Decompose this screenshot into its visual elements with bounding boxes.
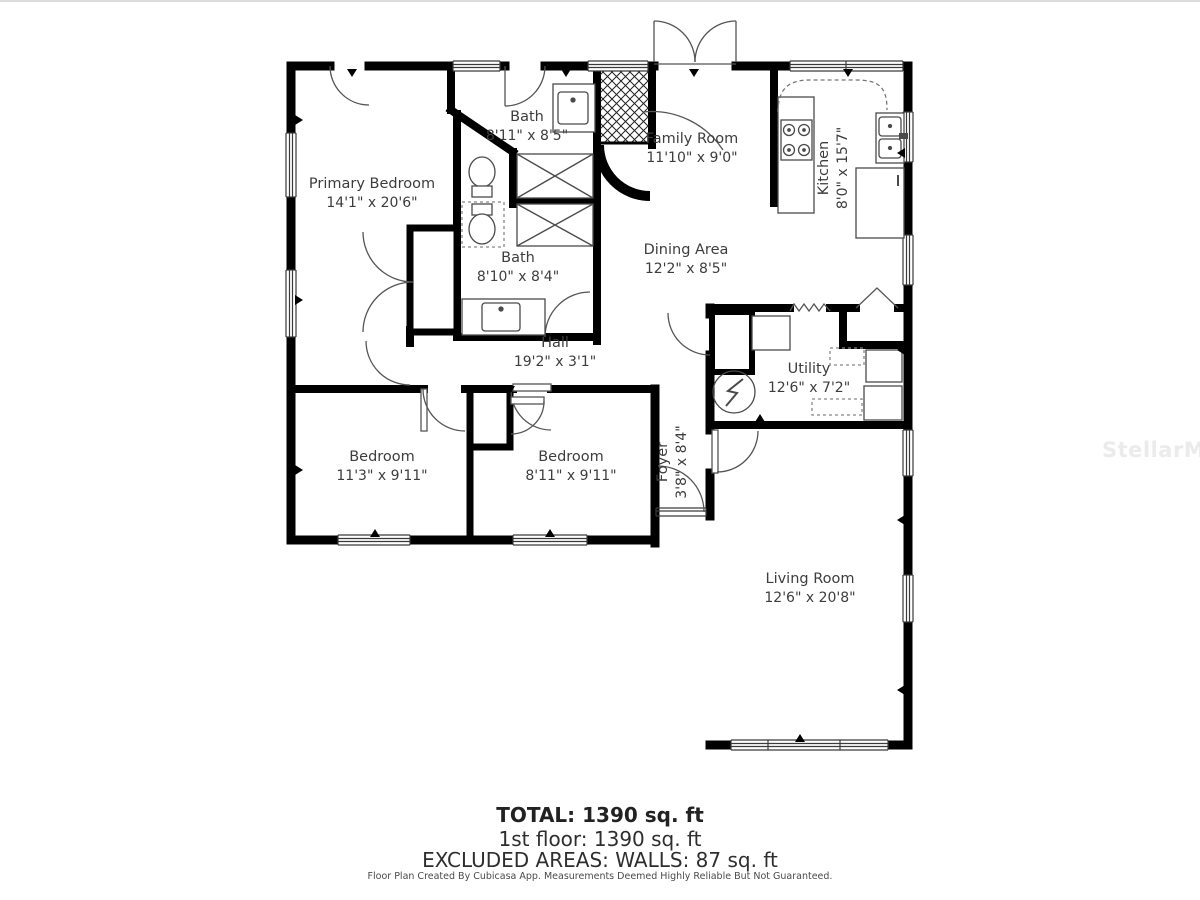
room-label-bath-2: Bath 8'10" x 8'4" (477, 249, 559, 287)
window (286, 270, 297, 337)
room-dims: 8'11" x 9'11" (525, 467, 616, 486)
room-name: Living Room (764, 570, 855, 589)
room-name: Bedroom (336, 448, 427, 467)
room-label-bath-1: Bath 8'11" x 8'5" (486, 108, 568, 146)
room-label-utility: Utility 12'6" x 7'2" (768, 360, 850, 398)
total-area-text: TOTAL: 1390 sq. ft (0, 803, 1200, 827)
freezer-icon (752, 316, 790, 350)
bedroom1-door (423, 389, 465, 431)
window (731, 740, 888, 751)
counter-dashed (812, 399, 862, 415)
window (286, 133, 297, 197)
room-dims: 3'8" x 8'4" (673, 425, 692, 498)
room-dims: 19'2" x 3'1" (514, 353, 596, 372)
room-dims: 11'10" x 9'0" (646, 149, 739, 168)
primary-closet (410, 228, 457, 332)
utility-closet (712, 312, 752, 372)
room-label-family-room: Family Room 11'10" x 9'0" (646, 130, 739, 168)
bath2-door (545, 292, 590, 337)
bath2-sink-icon (462, 299, 545, 335)
room-dims: 8'11" x 8'5" (486, 127, 568, 146)
room-dims: 12'6" x 7'2" (768, 379, 850, 398)
primary-bedroom-door (366, 341, 410, 385)
room-dims: 12'2" x 8'5" (644, 260, 729, 279)
utility-door (668, 313, 710, 355)
window (588, 61, 648, 72)
room-label-primary-bedroom: Primary Bedroom 14'1" x 20'6" (309, 175, 435, 213)
closet-door-upper (363, 232, 413, 282)
credit-text: Floor Plan Created By Cubicasa App. Meas… (0, 871, 1200, 882)
closet-door-lower (363, 282, 413, 332)
water-heater-icon (713, 371, 755, 413)
entrance-double-door (654, 21, 736, 64)
room-name: Primary Bedroom (309, 175, 435, 194)
excluded-areas-text: EXCLUDED AREAS: WALLS: 87 sq. ft (0, 848, 1200, 872)
room-label-bedroom-1: Bedroom 11'3" x 9'11" (336, 448, 427, 486)
shower-tub-icon (517, 154, 593, 198)
room-label-hall: Hall 19'2" x 3'1" (514, 334, 596, 372)
room-name: Kitchen (815, 127, 834, 209)
window (903, 430, 914, 476)
fridge-icon (856, 168, 904, 238)
bedroom2-closet-door (511, 401, 544, 434)
bifold-door-icon (856, 288, 898, 308)
room-label-bedroom-2: Bedroom 8'11" x 9'11" (525, 448, 616, 486)
room-name: Bedroom (525, 448, 616, 467)
room-name: Bath (477, 249, 559, 268)
room-name: Foyer (654, 425, 673, 498)
toilet-icon (469, 157, 495, 197)
wall-opening-zigzag-icon (790, 304, 830, 311)
room-label-dining-area: Dining Area 12'2" x 8'5" (644, 241, 729, 279)
room-dims: 8'10" x 8'4" (477, 268, 559, 287)
room-name: Bath (486, 108, 568, 127)
room-name: Family Room (646, 130, 739, 149)
room-dims: 8'0" x 15'7" (834, 127, 853, 209)
shower-tub-icon (517, 204, 593, 246)
room-dims: 12'6" x 20'8" (764, 589, 855, 608)
living-room-door (717, 431, 758, 472)
toilet-icon (462, 202, 504, 247)
window (903, 575, 914, 622)
bedroom2-door (511, 390, 551, 430)
room-name: Hall (514, 334, 596, 353)
bath1-door (505, 66, 545, 106)
watermark: StellarMLS (1102, 438, 1200, 462)
room-dims: 14'1" x 20'6" (309, 194, 435, 213)
room-label-kitchen: Kitchen 8'0" x 15'7" (815, 127, 853, 209)
entry-sidelight (656, 508, 706, 516)
stove-icon (781, 120, 812, 160)
floor-plan-page: Primary Bedroom 14'1" x 20'6" Bath 8'11"… (0, 0, 1200, 900)
room-dims: 11'3" x 9'11" (336, 467, 427, 486)
window (453, 61, 500, 72)
window (903, 235, 914, 285)
room-label-living-room: Living Room 12'6" x 20'8" (764, 570, 855, 608)
crosshatch-area (599, 68, 650, 196)
room-label-foyer: Foyer 3'8" x 8'4" (654, 425, 692, 498)
room-name: Dining Area (644, 241, 729, 260)
washer-icon (866, 350, 902, 382)
room-name: Utility (768, 360, 850, 379)
dryer-icon (864, 386, 902, 420)
